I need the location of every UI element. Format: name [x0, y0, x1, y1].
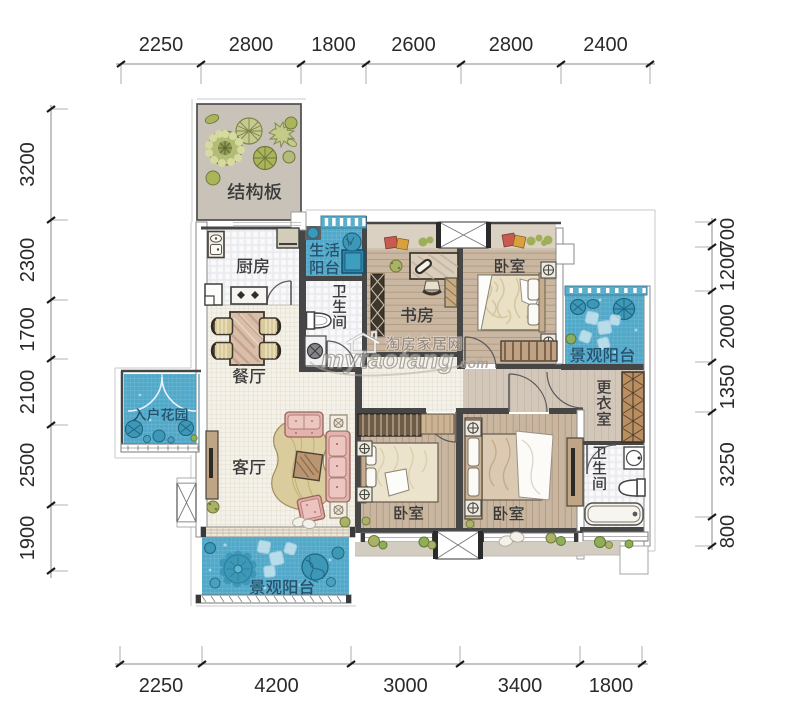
- svg-text:2100: 2100: [17, 370, 39, 415]
- svg-text:2600: 2600: [391, 34, 436, 56]
- svg-text:1700: 1700: [17, 307, 39, 352]
- svg-text:700: 700: [717, 218, 739, 251]
- svg-text:3250: 3250: [717, 442, 739, 487]
- svg-text:3200: 3200: [17, 142, 39, 187]
- svg-text:1900: 1900: [17, 516, 39, 561]
- svg-text:2250: 2250: [139, 675, 184, 697]
- svg-text:3400: 3400: [498, 675, 543, 697]
- svg-text:2400: 2400: [583, 34, 628, 56]
- svg-text:2000: 2000: [717, 304, 739, 349]
- svg-text:1350: 1350: [717, 365, 739, 410]
- svg-text:2300: 2300: [17, 238, 39, 283]
- svg-text:2800: 2800: [489, 34, 534, 56]
- svg-text:1800: 1800: [589, 675, 634, 697]
- svg-text:800: 800: [717, 515, 739, 548]
- svg-text:2500: 2500: [17, 443, 39, 488]
- svg-text:3000: 3000: [383, 675, 428, 697]
- svg-text:1800: 1800: [311, 34, 356, 56]
- svg-text:4200: 4200: [254, 675, 299, 697]
- svg-text:2800: 2800: [229, 34, 274, 56]
- svg-text:2250: 2250: [139, 34, 184, 56]
- svg-text:1200: 1200: [717, 247, 739, 292]
